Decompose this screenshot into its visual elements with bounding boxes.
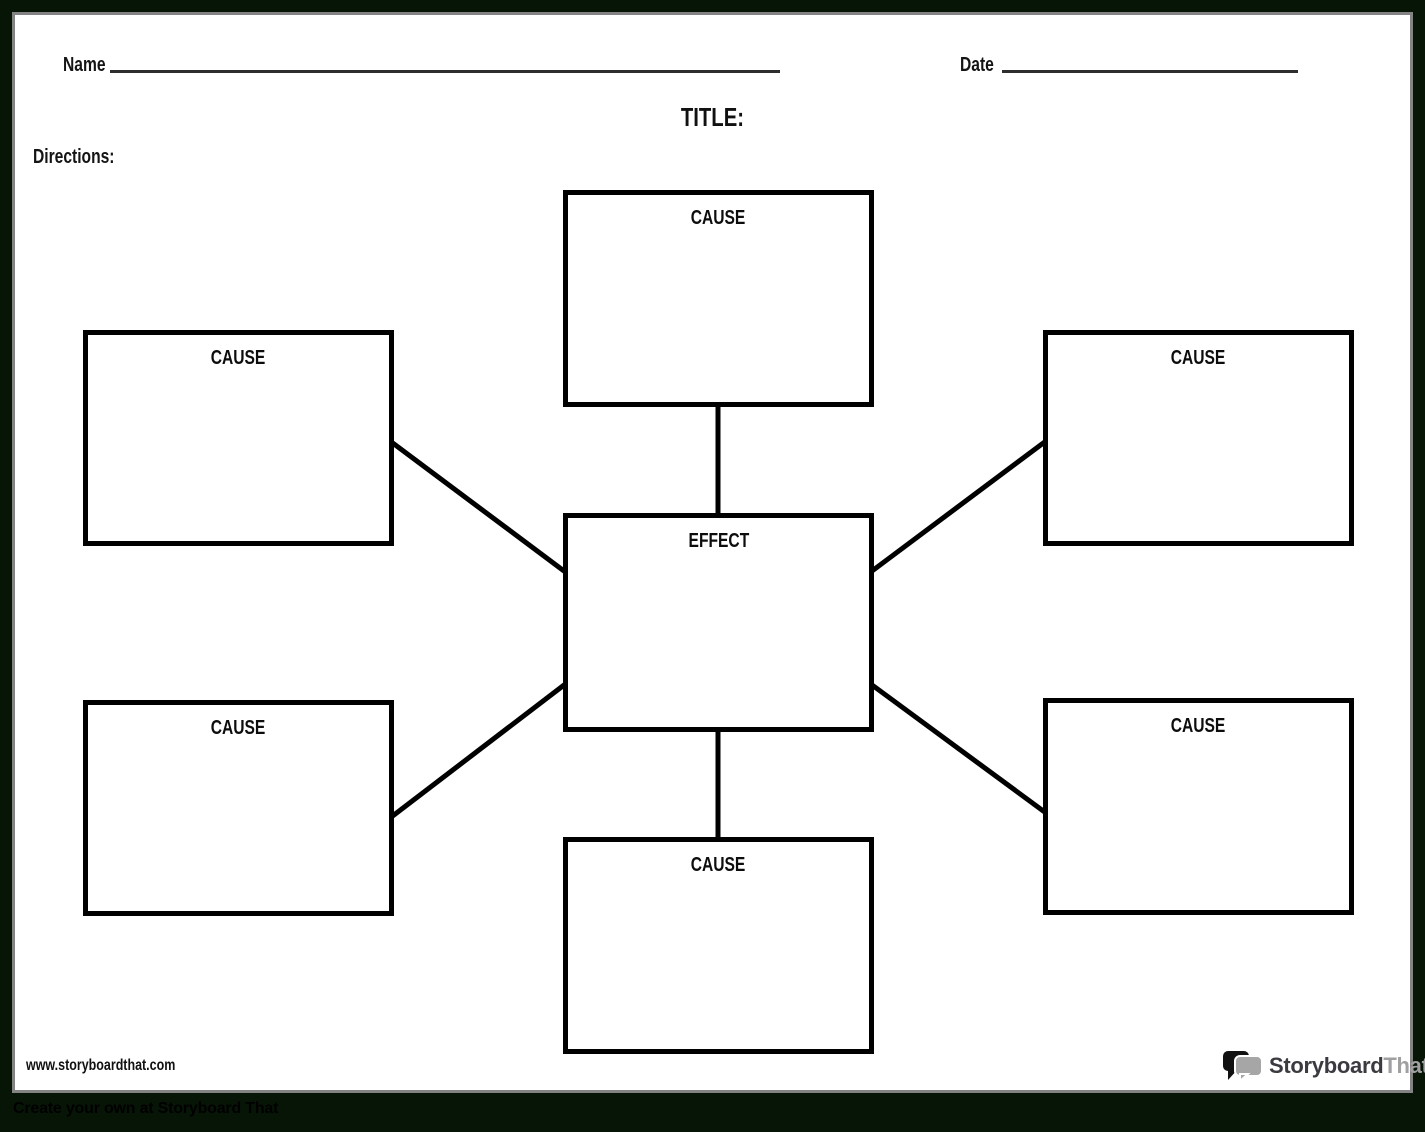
- brand-name-primary: Storyboard: [1269, 1053, 1383, 1078]
- worksheet-canvas: Name Date TITLE: Directions: CAUSE CAUSE…: [0, 0, 1425, 1132]
- connector-top-left: [390, 441, 568, 574]
- cause-box-bottom-left-label: CAUSE: [211, 717, 266, 740]
- cause-box-bottom-right[interactable]: CAUSE: [1043, 698, 1354, 915]
- cause-box-bottom[interactable]: CAUSE: [563, 837, 874, 1054]
- cause-box-top-right-label: CAUSE: [1171, 347, 1226, 370]
- cause-box-top-label: CAUSE: [691, 207, 746, 230]
- cause-box-top[interactable]: CAUSE: [563, 190, 874, 407]
- storyboardthat-logo: StoryboardThat: [1222, 1048, 1425, 1084]
- cause-box-top-left[interactable]: CAUSE: [83, 330, 394, 546]
- bottom-tagline: Create your own at Storyboard That: [13, 1100, 278, 1118]
- cause-box-bottom-right-label: CAUSE: [1171, 715, 1226, 738]
- effect-box[interactable]: EFFECT: [563, 513, 874, 732]
- effect-box-label: EFFECT: [688, 530, 749, 553]
- speech-bubbles-icon: [1222, 1048, 1262, 1084]
- brand-wordmark: StoryboardThat: [1269, 1053, 1425, 1079]
- cause-box-bottom-left[interactable]: CAUSE: [83, 700, 394, 916]
- connector-top-right: [868, 441, 1046, 574]
- connector-bottom-right: [868, 682, 1046, 813]
- cause-box-top-left-label: CAUSE: [211, 347, 266, 370]
- cause-box-top-right[interactable]: CAUSE: [1043, 330, 1354, 546]
- brand-name-secondary: That: [1383, 1053, 1425, 1078]
- website-url-text: www.storyboardthat.com: [26, 1057, 175, 1075]
- cause-box-bottom-label: CAUSE: [691, 854, 746, 877]
- connector-bottom-left: [390, 682, 568, 818]
- website-url: www.storyboardthat.com: [26, 1057, 217, 1075]
